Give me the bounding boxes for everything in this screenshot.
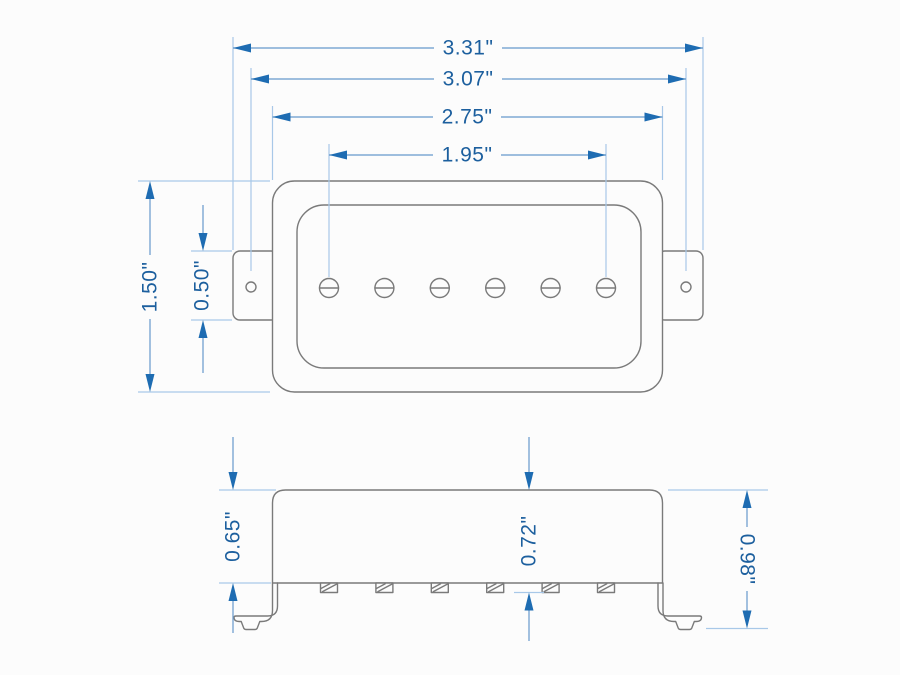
dimension-overall-width: 3.31" xyxy=(233,37,703,60)
mounting-leg-right xyxy=(658,583,702,630)
dim-label-pole-spread: 1.95" xyxy=(442,144,493,167)
arrowhead-right xyxy=(685,44,703,53)
arrowhead-down xyxy=(525,472,534,490)
drawing-canvas: 3.31" 3.07" 2.75" 1.95" xyxy=(0,0,900,675)
dimension-pole-spread: 1.95" xyxy=(329,144,606,167)
dim-label-depth-with-poles: 0.72" xyxy=(518,516,541,567)
mounting-leg-right-outline xyxy=(658,583,702,630)
dimension-depth-with-poles: 0.72" xyxy=(518,437,541,641)
arrowhead-up xyxy=(199,320,208,338)
pickup-dimension-drawing: 3.31" 3.07" 2.75" 1.95" xyxy=(0,0,900,675)
dimension-overall-height: 0.98" xyxy=(736,490,759,629)
side-view: 0.65" 0.72" 0.98" xyxy=(219,437,768,641)
arrowhead-down xyxy=(743,611,752,629)
dimension-body-height: 1.50" xyxy=(139,181,162,392)
mounting-ear-right xyxy=(658,251,703,320)
dim-label-overall-width: 3.31" xyxy=(443,37,494,60)
arrowhead-up xyxy=(229,583,238,601)
arrowhead-left xyxy=(329,151,347,160)
mounting-leg-left xyxy=(234,583,278,630)
arrowhead-right xyxy=(588,151,606,160)
arrowhead-up xyxy=(743,490,752,508)
mounting-leg-left-outline xyxy=(234,583,278,630)
dim-label-body-width: 2.75" xyxy=(442,106,493,129)
dimension-body-width: 2.75" xyxy=(273,106,663,129)
arrowhead-left xyxy=(251,75,269,84)
arrowhead-down xyxy=(146,374,155,392)
dim-label-mount-hole-spacing: 3.07" xyxy=(443,68,494,91)
dim-label-ear-height: 0.50" xyxy=(191,260,214,311)
dimension-cover-height: 0.65" xyxy=(222,437,245,633)
dim-label-overall-height: 0.98" xyxy=(736,534,759,585)
dim-label-body-height: 1.50" xyxy=(139,262,162,313)
cover-side-profile xyxy=(273,490,663,583)
arrowhead-right xyxy=(645,113,663,122)
pickup-outline xyxy=(233,181,703,392)
top-view: 3.31" 3.07" 2.75" 1.95" xyxy=(138,37,703,393)
arrowhead-down xyxy=(229,472,238,490)
dim-label-cover-height: 0.65" xyxy=(222,511,245,562)
dimension-ear-height: 0.50" xyxy=(191,205,214,373)
pole-screw-tips xyxy=(321,583,615,593)
arrowhead-right xyxy=(668,75,686,84)
arrowhead-left xyxy=(233,44,251,53)
arrowhead-left xyxy=(273,113,291,122)
dimension-mount-hole-spacing: 3.07" xyxy=(251,68,686,91)
arrowhead-up xyxy=(146,181,155,199)
arrowhead-down xyxy=(199,233,208,251)
arrowhead-up xyxy=(525,593,534,611)
